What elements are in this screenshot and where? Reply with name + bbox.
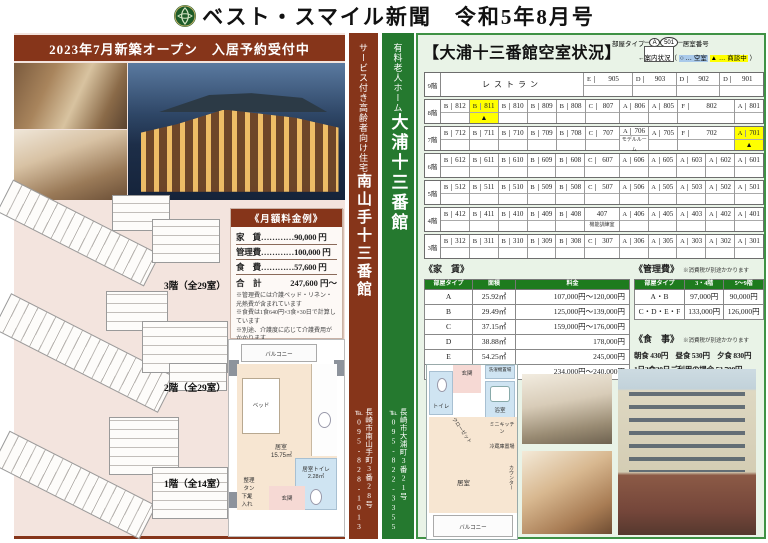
table-cell: 245,000円 [515,349,629,364]
table-cell: D [425,334,473,349]
legend: 部屋タイプ─ A 501 ─居室番号 ←案内状況（ ○ … 空室 ▲ … 商談中… [612,37,764,48]
room-cell: A801 [734,100,763,123]
room-cell: B712 [441,127,469,150]
room-cell: A402 [705,208,734,231]
room-status [706,248,734,258]
room-label: 居室 [457,477,470,487]
room-number: 409 [539,210,556,218]
room-size-label: 15.75㎡ [271,450,292,459]
table-cell: 37.15㎡ [473,319,516,334]
room-type: B [499,238,510,245]
room-number: 412 [452,210,469,218]
room-status [586,113,620,123]
room-number: 508 [567,183,584,191]
balcony-area: バルコニー [241,344,317,362]
room-status [499,140,527,150]
room-cell: A301 [734,235,763,258]
room-status [649,248,677,258]
room-number: 505 [660,183,677,191]
column-header: 部屋タイプ [425,280,473,290]
room-type: B [470,184,481,191]
fee-box-title: 《月額料金例》 [231,209,342,227]
room-type: C [585,184,596,191]
grid-area-cell: レストラン [441,73,583,96]
room-type: A [649,211,660,218]
room-status [585,194,618,204]
room-cell: A601 [734,154,763,177]
room-cell: A406 [619,208,648,231]
grid-floor-row: 7階B712B711B710B709B708C707A706モデルルームA705… [424,126,764,151]
room-type: E [584,76,595,83]
table-row: B29.49㎡125,000円～139,000円 [425,304,630,319]
room-number: 506 [631,183,648,191]
unit-plan-nanyamate: バルコニー ベッド 居室 15.75㎡ 居室トイレ 2.28㎡ 整理タンス 下足… [228,339,345,537]
room-status [706,221,734,231]
room-type: A [706,184,717,191]
facility-name: 大浦十三番館 [389,113,408,233]
fee-line: 家 賃…………90,000 円 [236,230,337,245]
fee-note: ※食費は1食640円×3食×30日で計算しています [236,309,337,326]
closet-label: クローゼット [451,416,474,445]
room-cell: A405 [648,208,677,231]
room-number: 802 [689,102,734,110]
room-number: 605 [660,156,677,164]
room-number: 606 [631,156,648,164]
room-number: 810 [510,102,527,110]
room-status [557,140,585,150]
entrance-label: 玄関 [269,494,305,502]
room-cell: B810 [498,100,527,123]
room-type: A [706,238,717,245]
building-dusk-photo [128,63,345,200]
room-type: A [620,238,631,245]
phone: ℡095-828-1013 [353,408,363,532]
room-status [677,221,705,231]
room-cell: B608 [555,154,584,177]
table-cell: 25.92㎡ [473,289,516,304]
room-type: D [633,76,644,83]
room-cell: A506 [619,181,648,204]
room-type: B [470,238,481,245]
bed-area: ベッド [242,378,280,434]
room-status [528,248,556,258]
room-type: D [677,76,688,83]
room-type: B [556,211,567,218]
room-type: B [528,157,539,164]
room-cell: B508 [555,181,584,204]
room-number: 708 [568,129,585,137]
room-status [706,167,734,177]
room-cell: A806 [619,100,648,123]
legend-nego: ▲ … 商談中 [710,55,748,62]
toilet-label: トイレ [430,402,452,410]
room-type: B [528,238,539,245]
counter-label: カウンター [508,465,515,490]
room-status [441,248,469,258]
room-number: 608 [567,156,584,164]
table-cell: 29.49㎡ [473,304,516,319]
floor-label: 8階 [425,100,441,123]
fee-note: ※管理費には介護ベッド・リネン・光熱費が含まれています [236,292,337,309]
washroom-area [311,364,337,456]
table-cell: 159,000円～176,000円 [515,319,629,334]
room-status [441,140,469,150]
fee-total-value: 247,600 円～ [290,277,337,289]
room-cell: B310 [498,235,527,258]
building-day-photo [618,369,756,535]
room-cell: A303 [676,235,705,258]
table-cell: 107,000円～120,000円 [515,289,629,304]
room-type: B [499,157,510,164]
rent-title: 《家 賃》 [424,264,469,274]
fee-line: 食 費…………57,600 円 [236,260,337,275]
table-row: C37.15㎡159,000円～176,000円 [425,319,630,334]
header: ベスト・スマイル新聞 令和5年8月号 [0,0,768,32]
column-header: 5～9階 [724,280,764,290]
room-number: 710 [510,129,527,137]
room-cell: A603 [676,154,705,177]
dining-room-photo [14,63,127,129]
service-type-label: 有料老人ホーム [393,43,403,113]
room-status [556,221,584,231]
room-cell: C507 [584,181,618,204]
fee-notes: ※管理費には介護ベッド・リネン・光熱費が含まれています※食費は1食640円×3食… [236,292,337,344]
address: 長崎市大浦町3番21号 [398,408,408,532]
fee-lines: 家 賃…………90,000 円管理費…………100,000 円食 費…………57… [236,230,337,275]
living-area: クローゼット ミニキッチン 冷蔵庫置場 カウンター 居室 [429,417,517,513]
room-status [620,248,648,258]
room-cell: A502 [705,181,734,204]
room-cell: F802 [677,100,734,123]
room-cell: D901 [719,73,763,96]
room-cell: A306 [619,235,648,258]
table-row: D38.88㎡178,000円 [425,334,630,349]
room-type: B [470,103,481,110]
toilet-area: トイレ [429,371,453,415]
room-cell: B711 [469,127,498,150]
room-number: 311 [481,237,498,245]
room-status [649,221,677,231]
page-title: ベスト・スマイル新聞 令和5年8月号 [202,1,595,31]
room-number: 307 [596,237,618,245]
room-cell: B509 [527,181,556,204]
room-cell: A605 [648,154,677,177]
room-status [735,221,763,231]
room-status [557,113,585,123]
mgmt-table: 部屋タイプ3・4階5～9階A・B97,000円90,000円C・D・E・F133… [634,279,764,320]
room-status [649,167,677,177]
unit-plan-oura: 玄関 洗濯機置場 トイレ 浴室 クローゼット ミニキッチン 冷蔵庫置場 カウンタ… [426,364,518,540]
room-number: 807 [597,102,620,110]
room-number: 312 [452,237,469,245]
room-type: A [706,157,717,164]
room-number: 408 [567,210,584,218]
room-number: 301 [746,237,763,245]
bed-label: ベッド [243,401,279,409]
floorplan-2f [14,291,264,411]
room-status [735,167,763,177]
room-type: A [620,128,631,135]
legend-status: ←案内状況（ ○ … 空室 ▲ … 商談中 ） [638,52,756,62]
room-number: 709 [539,129,556,137]
column-header: 3・4階 [684,280,724,290]
legend-type-label: 部屋タイプ [612,38,645,48]
room-cell: A501 [734,181,763,204]
fee-line: 管理費…………100,000 円 [236,245,337,260]
room-status [499,113,527,123]
entrance-label: 玄関 [453,369,481,377]
oura-strip: 有料老人ホーム大浦十三番館 長崎市大浦町3番21号 ℡095-822-3355 [382,33,414,539]
room-number: 702 [689,129,734,137]
room-status [649,194,677,204]
room-type: B [441,184,452,191]
room-number: 609 [539,156,556,164]
room-type: B [470,130,481,137]
room-type: C [586,130,597,137]
room-cell: B611 [469,154,498,177]
room-cell: B412 [441,208,469,231]
room-type: A [677,184,688,191]
room-number: 610 [510,156,527,164]
room-cell: B410 [498,208,527,231]
room-status [735,113,763,123]
room-status [499,167,527,177]
room-cell: A706モデルルーム [619,127,648,150]
room-number: 611 [481,156,498,164]
room-type: B [499,103,510,110]
table-cell: 90,000円 [724,289,764,304]
vacancy-title: 【大浦十三番館空室状況】 [423,39,621,63]
room-status: ▲ [470,113,498,123]
room-type: A [620,103,631,110]
floorplan-2f-label: 2階（全29室） [164,380,226,394]
room-status [556,167,584,177]
room-cell: B308 [555,235,584,258]
room-cell: B311 [469,235,498,258]
room-number: 905 [595,75,632,83]
room-cell: B312 [441,235,469,258]
room-status [528,113,556,123]
table-cell: B [425,304,473,319]
table-cell: 54.25㎡ [473,349,516,364]
column-header: 部屋タイプ [635,280,685,290]
entrance-area: 玄関 [269,486,305,510]
address: 長崎市南山手町3番28号 [364,408,374,532]
room-number: 805 [660,102,677,110]
table-cell: 38.88㎡ [473,334,516,349]
room-type: B [441,238,452,245]
room-cell: B610 [498,154,527,177]
room-type: B [528,103,539,110]
room-type: A [735,103,746,110]
room-cell: B409 [527,208,556,231]
room-number: 901 [731,75,763,83]
service-type-label: サービス付き高齢者向け住宅 [358,43,368,173]
room-type: F [678,130,689,137]
monthly-fee-box: 《月額料金例》 家 賃…………90,000 円管理費…………100,000 円食… [230,208,343,339]
room-type: D [720,76,731,83]
room-cell: B612 [441,154,469,177]
table-row: A25.92㎡107,000円～120,000円 [425,289,630,304]
room-cell: A302 [705,235,734,258]
room-type: A [649,103,660,110]
room-cell: B511 [469,181,498,204]
room-type: A [735,211,746,218]
oura-vacancy-section: 【大浦十三番館空室状況】 部屋タイプ─ A 501 ─居室番号 ←案内状況（ ○… [416,33,766,539]
table-row: C・D・E・F133,000円126,000円 [635,304,764,319]
room-status [678,113,734,123]
room-type: A [706,211,717,218]
room-status [470,221,498,231]
mgmt-section: 《管理費》 ※消費税が別途かかります 部屋タイプ3・4階5～9階A・B97,00… [634,259,764,320]
room-status [528,140,556,150]
balcony-area: バルコニー [433,515,513,537]
room-cell: C307 [584,235,618,258]
table-cell: C [425,319,473,334]
room-type: A [649,184,660,191]
room-number: 510 [510,183,527,191]
room-status [528,221,556,231]
room-cell: A505 [648,181,677,204]
room-type: A [735,130,746,137]
room-status [649,113,677,123]
room-status [677,248,705,258]
room-type: B [470,157,481,164]
room-status: モデルルーム [620,136,648,156]
floor-label: 9階 [425,73,441,96]
table-cell: 133,000円 [684,304,724,319]
room-number: 601 [746,156,763,164]
fee-total: 合 計 247,600 円～ [236,275,337,292]
room-cell: E905 [583,73,632,96]
room-number: 309 [539,237,556,245]
mgmt-title: 《管理費》 [634,264,679,274]
room-status [677,86,720,96]
room-status [556,194,584,204]
meals-note: ※消費税が別途かかります [683,338,749,344]
mgmt-price-table: 部屋タイプ3・4階5～9階A・B97,000円90,000円C・D・E・F133… [634,279,764,320]
laundry-label: 洗濯機置場 [486,367,514,373]
column-header: 面積 [473,280,516,290]
table-cell: A・B [635,289,685,304]
kitchen-label: ミニキッチン [489,421,515,435]
room-type: B [499,130,510,137]
fee-total-label: 合 計 [236,277,262,289]
building-windows [629,392,745,472]
room-status [677,167,705,177]
room-number: 503 [688,183,705,191]
room-status [528,167,556,177]
room-type: B [556,184,567,191]
room-status [470,248,498,258]
grid-floor-row: 6階B612B611B610B609B608C607A606A605A603A6… [424,153,764,178]
room-status [584,86,632,96]
grid-floor-row: 5階B512B511B510B509B508C507A506A505A503A5… [424,180,764,205]
lobby-photo [522,374,612,444]
room-type: B [556,238,567,245]
camellia-logo-icon [173,4,197,28]
room-type: A [735,184,746,191]
room-cell: B808 [556,100,585,123]
room-type: C [585,238,596,245]
room-status [441,167,469,177]
room-type: A [735,238,746,245]
room-number: 305 [660,237,677,245]
room-number: 308 [567,237,584,245]
room-cell: B408 [555,208,584,231]
meal-prices: 朝食 430円 昼食 530円 夕食 830円 [634,350,766,361]
facility-name: 南山手十三番館 [355,173,371,299]
table-row: A・B97,000円90,000円 [635,289,764,304]
room-number: 405 [660,210,677,218]
floorplan-1f [14,411,264,537]
room-number: 403 [688,210,705,218]
floor-label: 4階 [425,208,441,231]
room-status [620,221,648,231]
room-status [499,194,527,204]
table-cell: C・D・E・F [635,304,685,319]
room-number: 407 [585,210,618,218]
room-type: B [441,103,452,110]
vacancy-grid: 9階レストランE905D903D902D9018階B812B811▲B810B8… [424,72,764,261]
room-cell: A606 [619,154,648,177]
room-cell: A602 [705,154,734,177]
floor-label: 6階 [425,154,441,177]
room-type: A [620,211,631,218]
building-facade [141,110,338,192]
room-number: 607 [596,156,618,164]
room-number: 603 [688,156,705,164]
room-type: A [677,211,688,218]
room-number: 811 [481,102,498,110]
room-type: B [557,130,568,137]
room-status: 機能訓練室 [585,221,618,231]
open-banner: 2023年7月新築オープン 入居予約受付中 [14,35,345,61]
room-number: 812 [452,102,469,110]
bath-area: 浴室 [485,381,515,419]
room-cell: A701▲ [734,127,763,150]
room-number: 401 [746,210,763,218]
room-type: A [735,157,746,164]
room-cell: A805 [648,100,677,123]
room-status [499,221,527,231]
phone: ℡095-822-3355 [388,408,398,532]
grid-floor-row: 9階レストランE905D903D902D901 [424,72,764,97]
room-cell: C807 [585,100,620,123]
meals-title: 《食 事》 [634,334,679,344]
room-type: A [649,157,660,164]
room-cell: A705 [648,127,677,150]
room-status [470,194,498,204]
toilet-size-label: 2.28㎡ [296,472,336,480]
legend-vacant: ○ … 空室 [679,55,708,62]
room-cell: C707 [585,127,620,150]
grid-floor-row: 4階B412B411B410B409B408407機能訓練室A406A405A4… [424,207,764,232]
room-number: 705 [660,129,677,137]
room-status [735,194,763,204]
shoe-label: 下足入れ [241,492,253,508]
room-status: ▲ [735,140,763,150]
room-cell: 407機能訓練室 [584,208,618,231]
legend-no-label: 居室番号 [683,38,709,48]
room-cell: B809 [527,100,556,123]
table-cell: A [425,289,473,304]
room-type: B [499,211,510,218]
room-number: 302 [717,237,734,245]
room-cell: D902 [676,73,720,96]
room-type: A [677,238,688,245]
nanyamate-strip: サービス付き高齢者向け住宅南山手十三番館 長崎市南山手町3番28号 ℡095-8… [349,33,378,539]
